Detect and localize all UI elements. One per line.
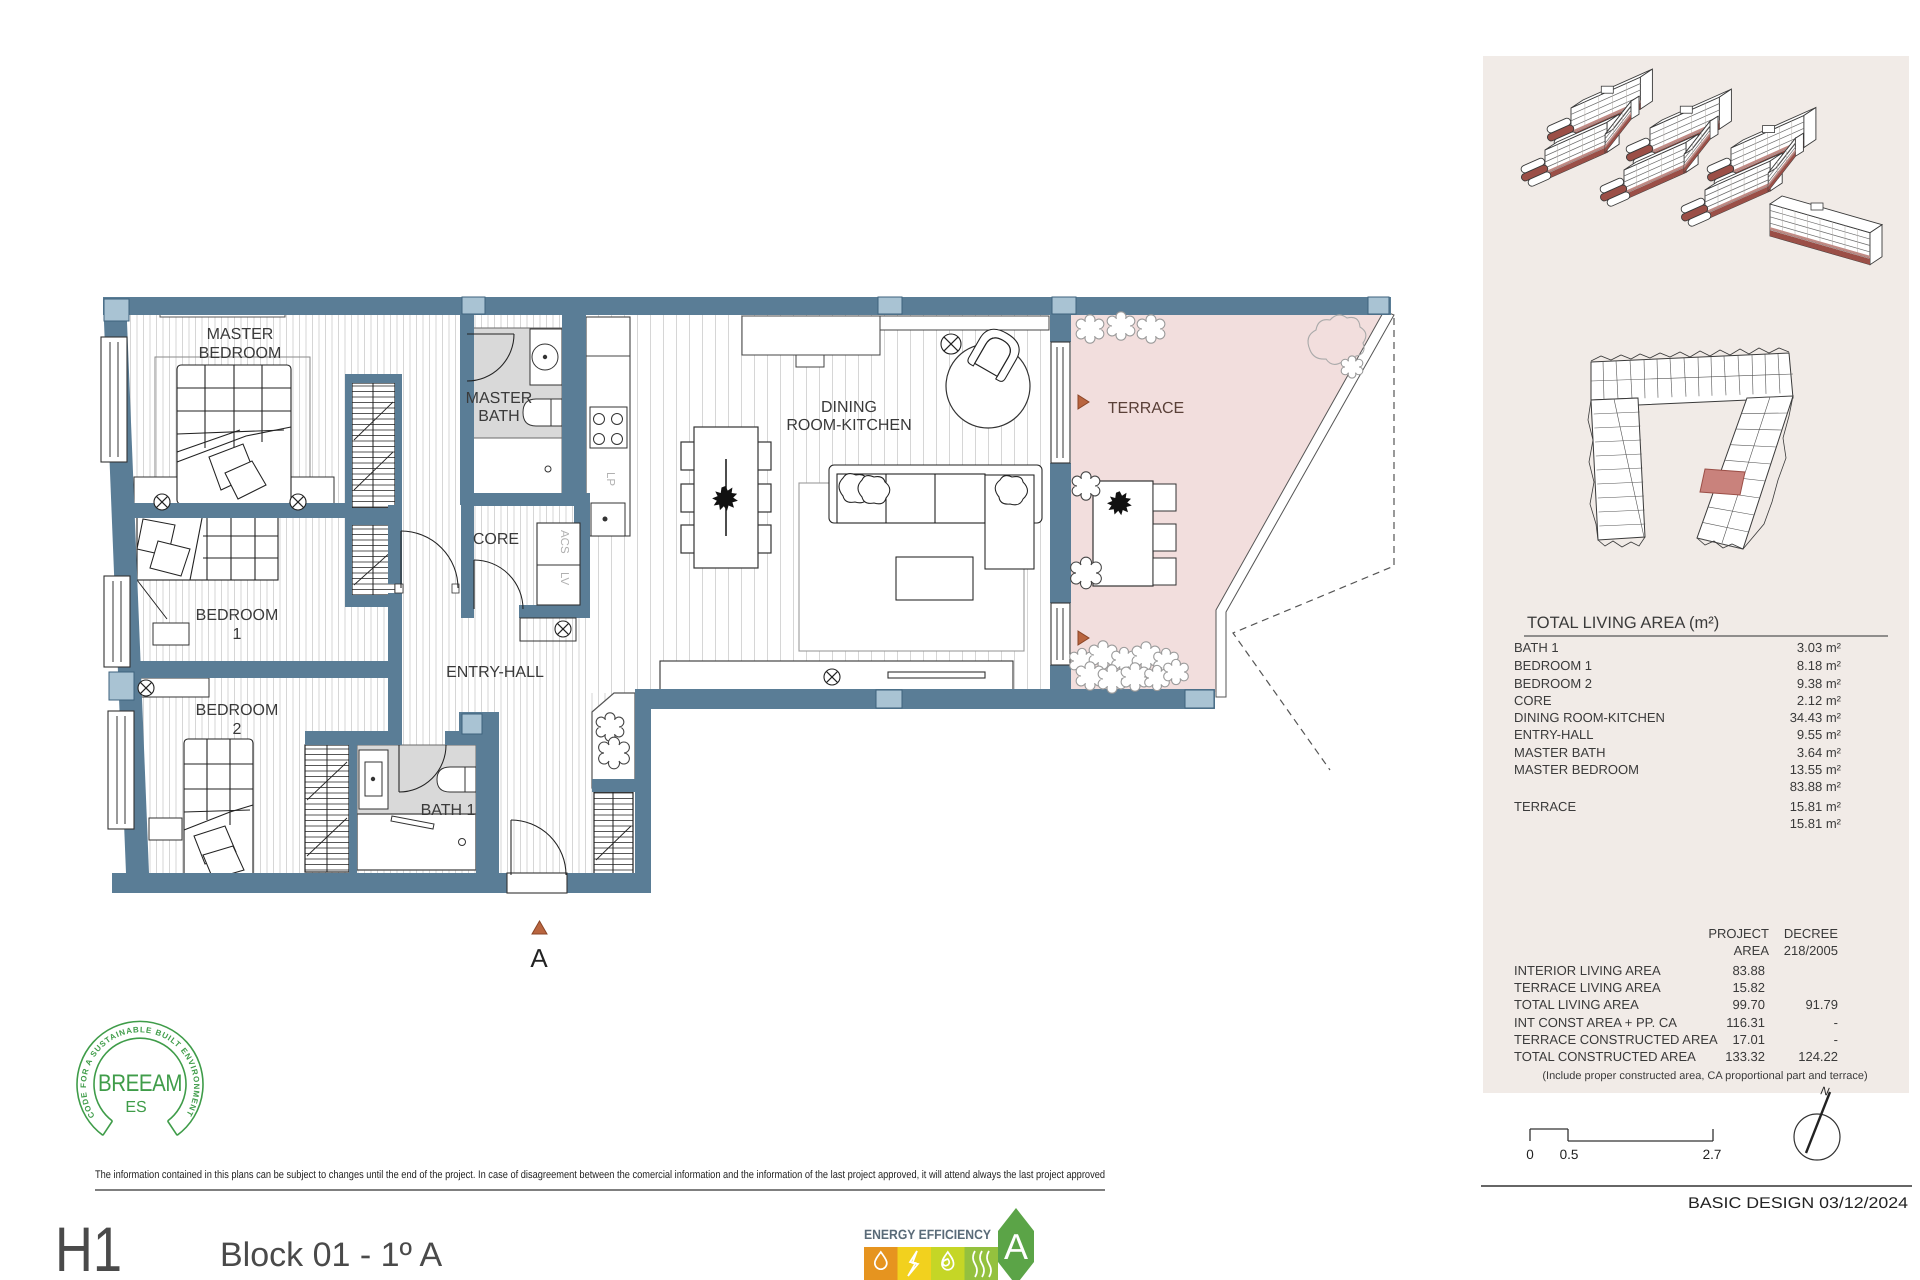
svg-text:15.81 m²: 15.81 m² <box>1790 799 1842 814</box>
svg-text:LP: LP <box>604 472 616 486</box>
svg-text:2.7: 2.7 <box>1703 1147 1722 1162</box>
svg-text:2: 2 <box>233 721 242 738</box>
svg-text:2.12 m²: 2.12 m² <box>1797 693 1842 708</box>
svg-text:MASTER: MASTER <box>466 390 533 407</box>
svg-text:A: A <box>1004 1226 1028 1267</box>
svg-text:ACS: ACS <box>558 530 570 554</box>
svg-text:H1: H1 <box>55 1215 122 1280</box>
svg-text:34.43 m²: 34.43 m² <box>1790 710 1842 725</box>
svg-text:INT CONST AREA + PP. CA: INT CONST AREA + PP. CA <box>1514 1015 1677 1030</box>
svg-text:BATH: BATH <box>478 408 519 425</box>
svg-text:DECREE: DECREE <box>1784 926 1839 941</box>
svg-text:83.88: 83.88 <box>1732 963 1765 978</box>
svg-text:ES: ES <box>125 1099 146 1116</box>
svg-text:Block 01 - 1º A: Block 01 - 1º A <box>220 1236 443 1274</box>
svg-text:9.38 m²: 9.38 m² <box>1797 676 1842 691</box>
svg-text:BEDROOM 2: BEDROOM 2 <box>1514 676 1592 691</box>
svg-text:116.31: 116.31 <box>1726 1015 1765 1030</box>
svg-text:BREEAM: BREEAM <box>98 1070 182 1097</box>
svg-text:A: A <box>530 943 548 973</box>
svg-text:-: - <box>1834 1015 1838 1030</box>
svg-text:91.79: 91.79 <box>1805 997 1838 1012</box>
svg-text:INTERIOR LIVING AREA: INTERIOR LIVING AREA <box>1514 963 1661 978</box>
svg-text:The information contained in t: The information contained in this plans … <box>95 1169 1105 1181</box>
svg-text:LV: LV <box>558 572 570 586</box>
svg-text:BEDROOM: BEDROOM <box>199 345 282 362</box>
svg-text:99.70: 99.70 <box>1732 997 1765 1012</box>
svg-text:DINING ROOM-KITCHEN: DINING ROOM-KITCHEN <box>1514 710 1665 725</box>
svg-text:83.88 m²: 83.88 m² <box>1790 779 1842 794</box>
svg-text:TERRACE: TERRACE <box>1514 799 1576 814</box>
svg-text:BASIC DESIGN 03/12/2024: BASIC DESIGN 03/12/2024 <box>1688 1195 1908 1212</box>
svg-text:(Include proper constructed ar: (Include proper constructed area, CA pro… <box>1542 1070 1867 1082</box>
svg-text:15.82: 15.82 <box>1732 980 1765 995</box>
svg-text:PROJECT: PROJECT <box>1708 926 1769 941</box>
svg-text:1: 1 <box>233 626 242 643</box>
svg-text:218/2005: 218/2005 <box>1784 943 1838 958</box>
svg-text:AREA: AREA <box>1734 943 1770 958</box>
svg-text:BATH 1: BATH 1 <box>1514 640 1559 655</box>
svg-text:17.01: 17.01 <box>1732 1032 1765 1047</box>
svg-text:15.81 m²: 15.81 m² <box>1790 816 1842 831</box>
svg-text:CORE: CORE <box>473 531 519 548</box>
svg-text:BEDROOM: BEDROOM <box>196 607 279 624</box>
svg-text:133.32: 133.32 <box>1725 1049 1765 1064</box>
svg-text:MASTER BATH: MASTER BATH <box>1514 745 1606 760</box>
svg-text:-: - <box>1834 1032 1838 1047</box>
svg-text:3.03 m²: 3.03 m² <box>1797 640 1842 655</box>
svg-text:TOTAL CONSTRUCTED AREA: TOTAL CONSTRUCTED AREA <box>1514 1049 1696 1064</box>
svg-text:TOTAL LIVING AREA (m²): TOTAL LIVING AREA (m²) <box>1527 614 1719 632</box>
svg-text:TERRACE CONSTRUCTED AREA: TERRACE CONSTRUCTED AREA <box>1514 1032 1718 1047</box>
svg-text:ROOM-KITCHEN: ROOM-KITCHEN <box>786 417 911 434</box>
svg-text:0: 0 <box>1526 1147 1534 1162</box>
svg-text:CORE: CORE <box>1514 693 1552 708</box>
svg-text:0.5: 0.5 <box>1560 1147 1579 1162</box>
svg-text:MASTER: MASTER <box>207 326 274 343</box>
svg-text:MASTER BEDROOM: MASTER BEDROOM <box>1514 762 1639 777</box>
svg-text:3.64 m²: 3.64 m² <box>1797 745 1842 760</box>
svg-text:DINING: DINING <box>821 399 877 416</box>
svg-text:TOTAL LIVING AREA: TOTAL LIVING AREA <box>1514 997 1639 1012</box>
svg-text:ENERGY EFFICIENCY: ENERGY EFFICIENCY <box>864 1227 991 1242</box>
svg-text:BATH 1: BATH 1 <box>421 802 476 819</box>
svg-text:ENTRY-HALL: ENTRY-HALL <box>446 664 544 681</box>
svg-text:BEDROOM 1: BEDROOM 1 <box>1514 658 1592 673</box>
svg-text:8.18 m²: 8.18 m² <box>1797 658 1842 673</box>
svg-text:ENTRY-HALL: ENTRY-HALL <box>1514 727 1593 742</box>
svg-text:TERRACE: TERRACE <box>1108 400 1184 417</box>
svg-text:124.22: 124.22 <box>1798 1049 1838 1064</box>
svg-text:BEDROOM: BEDROOM <box>196 702 279 719</box>
svg-text:TERRACE LIVING AREA: TERRACE LIVING AREA <box>1514 980 1661 995</box>
svg-text:9.55 m²: 9.55 m² <box>1797 727 1842 742</box>
svg-text:13.55 m²: 13.55 m² <box>1790 762 1842 777</box>
